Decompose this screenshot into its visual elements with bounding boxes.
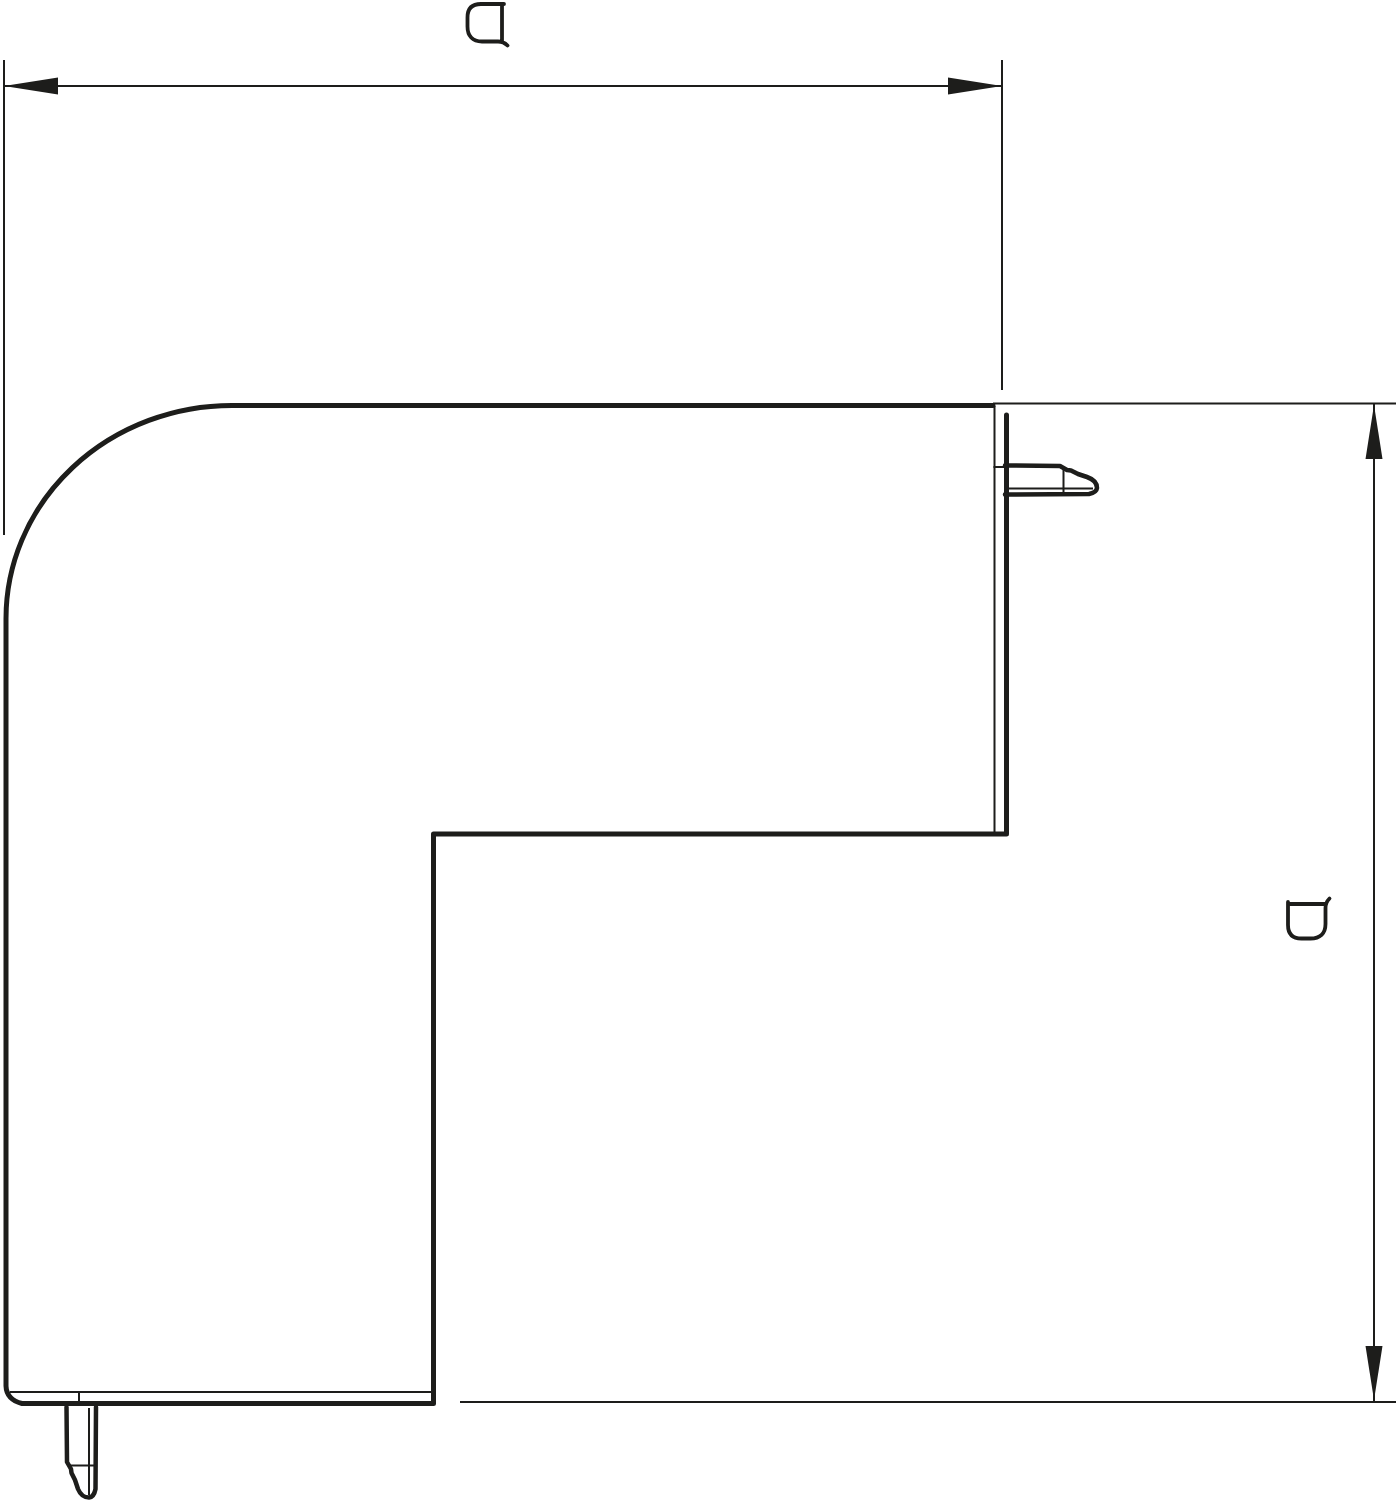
corner-cover-drawing	[0, 0, 1396, 1500]
arrowhead-left-icon	[4, 78, 58, 95]
horizontal-dimension	[4, 4, 1002, 535]
bottom-retaining-clip	[67, 1407, 97, 1498]
corner-cover-body	[6, 406, 1097, 1498]
horizontal-dimension-label	[468, 4, 508, 46]
technical-drawing-canvas: a a	[0, 0, 1396, 1500]
right-retaining-clip	[1005, 466, 1097, 495]
arrowhead-up-icon	[1366, 405, 1383, 459]
arrowhead-right-icon	[948, 78, 1002, 95]
arrowhead-down-icon	[1366, 1346, 1383, 1400]
bottom-clip-outline	[67, 1407, 97, 1498]
vertical-dimension-label	[1288, 899, 1330, 939]
cover-outer-contour	[6, 406, 1007, 1404]
right-clip-outline	[1005, 466, 1097, 495]
vertical-dimension	[460, 404, 1396, 1403]
